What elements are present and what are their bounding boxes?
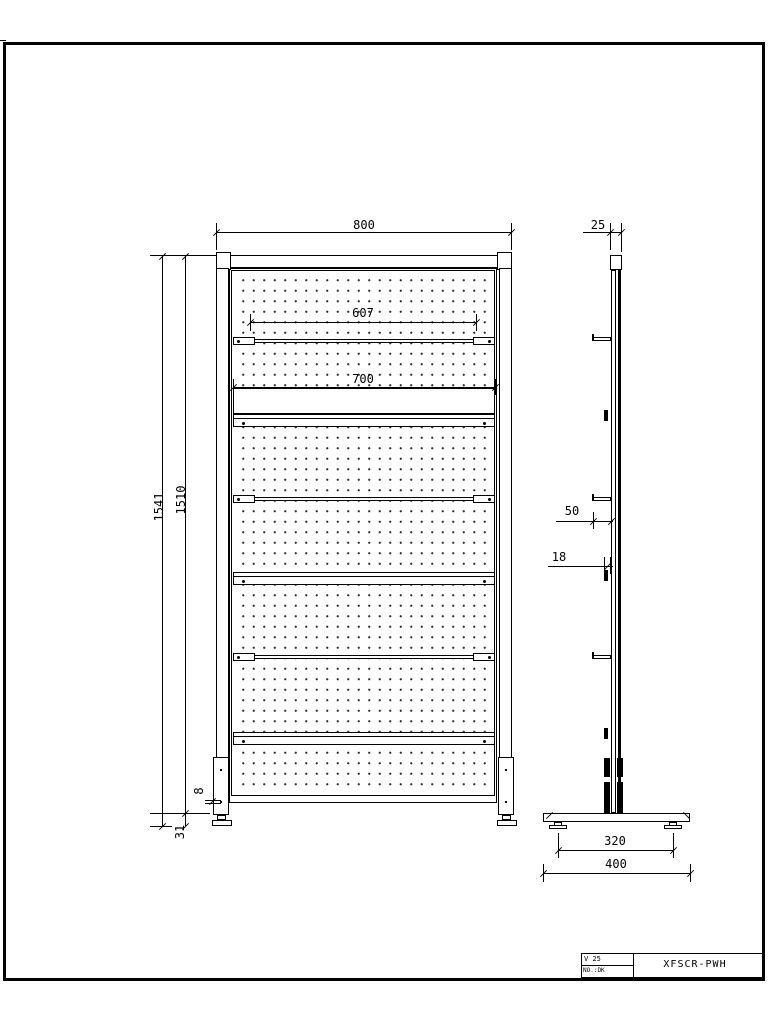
dim-50-line <box>556 521 613 522</box>
shelf-rail-2 <box>233 572 495 585</box>
base-plate <box>543 813 690 822</box>
dim-1541-label: 1541 <box>153 477 167 537</box>
rail-end-clip <box>233 337 255 345</box>
corner-tick <box>0 40 6 41</box>
title-block-rev: V 25 <box>584 956 630 963</box>
leg-bolt <box>505 801 507 803</box>
shelf-rail-3 <box>233 732 495 745</box>
dim-800-line <box>216 232 512 233</box>
leg-channel-right <box>498 757 514 815</box>
frame-top-bar <box>216 255 512 268</box>
foot-pad-left <box>212 820 232 826</box>
drawing-title: XFSCR-PWH <box>633 960 757 970</box>
dim-1510-label: 1510 <box>175 470 189 530</box>
leg-bolt <box>505 769 507 771</box>
panel-bottom-strip <box>231 795 495 803</box>
dim-18-label: 18 <box>546 551 572 563</box>
hook-rail-3 <box>233 653 495 661</box>
foot-pad-right <box>497 820 517 826</box>
side-leg-bar <box>617 758 623 777</box>
side-hook-1 <box>593 337 611 341</box>
dim-50-label: 50 <box>558 505 586 517</box>
title-block-row-divider <box>581 965 633 966</box>
base-foot-pad <box>549 825 567 829</box>
shelf-band <box>233 388 495 414</box>
dim-1541-line <box>162 256 163 826</box>
dim-320-line <box>558 850 673 851</box>
side-panel-outline <box>611 270 616 813</box>
side-leg-bar <box>617 782 623 813</box>
side-hook-2 <box>593 497 611 501</box>
rail-end-clip <box>233 653 255 661</box>
side-bracket-1 <box>604 410 608 421</box>
dim-607-line <box>250 322 477 323</box>
leg-bolt <box>220 769 222 771</box>
side-hook-3 <box>593 655 611 659</box>
title-block-doc-no: NO.:DK <box>583 968 629 974</box>
pegboard-hole-grid <box>236 273 490 792</box>
dim-320-label: 320 <box>590 835 640 847</box>
base-foot-pad <box>664 825 682 829</box>
hook-rail-bar <box>233 497 495 501</box>
dim-607-label: 607 <box>333 307 393 319</box>
side-leg-bar <box>604 758 610 777</box>
side-bracket-3 <box>604 728 608 739</box>
hook-rail-bar <box>233 339 495 343</box>
shelf-rail-1 <box>233 414 495 427</box>
side-leg-bar <box>604 782 610 813</box>
leg-channel-left <box>213 757 229 815</box>
dim-25-line <box>583 232 621 233</box>
side-panel-sheet <box>618 270 621 813</box>
dim-700-line <box>233 387 495 388</box>
drawing-sheet: 800 607 700 1541 1510 31 <box>0 0 768 1024</box>
dim-400-label: 400 <box>591 858 641 870</box>
dim-700-label: 700 <box>333 373 393 385</box>
dim-1510-line <box>185 256 186 813</box>
frame-post-right <box>499 268 512 815</box>
rail-end-clip <box>473 337 495 345</box>
rail-end-clip <box>233 495 255 503</box>
hook-rail-1 <box>233 337 495 345</box>
dim-800-label: 800 <box>334 219 394 231</box>
side-top-cap <box>610 255 622 270</box>
hook-rail-bar <box>233 655 495 659</box>
hook-rail-2 <box>233 495 495 503</box>
frame-post-left <box>216 268 229 815</box>
rail-end-clip <box>473 495 495 503</box>
dim-400-line <box>543 873 690 874</box>
rail-end-clip <box>473 653 495 661</box>
dim-25-label: 25 <box>583 219 613 231</box>
